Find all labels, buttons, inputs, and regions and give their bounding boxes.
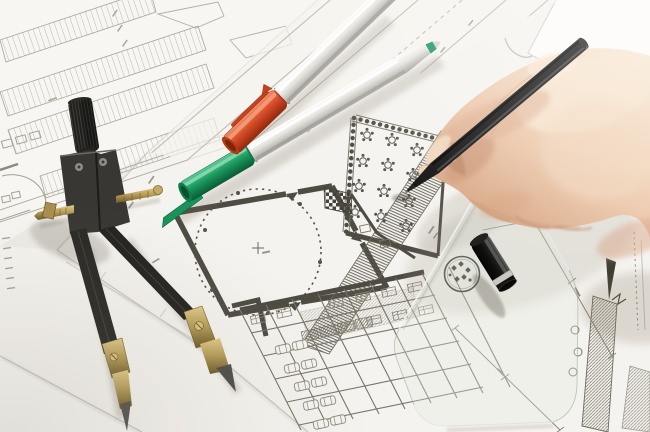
shadow-vignette bbox=[0, 0, 650, 432]
scene-canvas bbox=[0, 0, 650, 432]
photo-architect-workspace bbox=[0, 0, 650, 432]
